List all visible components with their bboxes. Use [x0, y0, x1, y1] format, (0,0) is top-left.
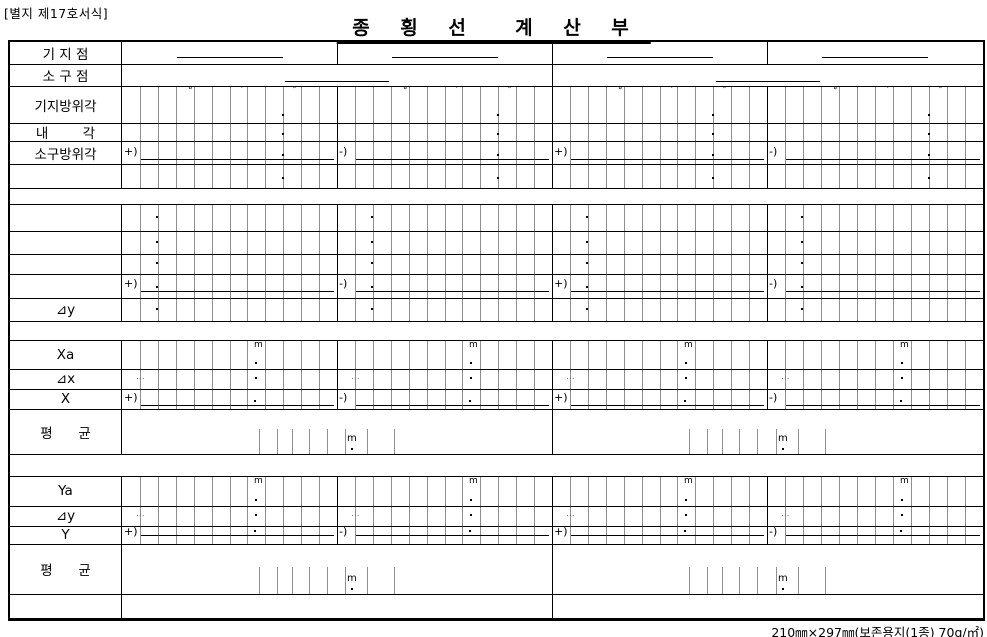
mean-tick	[707, 567, 708, 594]
mean-tick	[722, 567, 723, 594]
decimal-point	[801, 262, 803, 264]
cell-line	[230, 164, 231, 188]
mean-tick	[367, 567, 368, 594]
block-divider	[767, 164, 768, 188]
row-divider	[10, 409, 983, 410]
cell-line	[462, 298, 463, 321]
cell-line	[534, 340, 535, 369]
cell-line	[821, 274, 822, 298]
cell-line	[785, 389, 786, 409]
cell-line	[355, 389, 356, 409]
cell-line	[893, 506, 894, 526]
cell-line	[283, 231, 284, 254]
cell-line	[893, 231, 894, 254]
operator-sign: +)	[554, 146, 568, 157]
cell-line	[821, 389, 822, 409]
block-divider	[552, 389, 553, 409]
cell-line	[624, 164, 625, 188]
cell-line	[677, 204, 678, 231]
sum-line	[141, 405, 334, 406]
cell-line	[642, 86, 643, 123]
cell-line	[427, 298, 428, 321]
cell-line	[445, 254, 446, 274]
row-cells	[122, 204, 983, 231]
row-calc-row-1	[10, 204, 983, 231]
mean-tick	[277, 567, 278, 594]
cell-line	[624, 389, 625, 409]
cell-line	[965, 369, 966, 389]
cell-line	[445, 231, 446, 254]
cell-line	[498, 141, 499, 164]
cell-line	[427, 86, 428, 123]
decimal-point	[685, 499, 687, 501]
operator-sign: +)	[124, 278, 138, 289]
cell-line	[839, 86, 840, 123]
cell-line	[642, 476, 643, 506]
cell-line	[821, 164, 822, 188]
cell-line	[319, 476, 320, 506]
cell-line	[947, 141, 948, 164]
row-divider	[10, 389, 983, 390]
cell-line	[194, 164, 195, 188]
cell-line	[677, 389, 678, 409]
cell-line	[731, 369, 732, 389]
cell-line	[731, 298, 732, 321]
mean-tick	[798, 429, 799, 454]
cell-line	[588, 254, 589, 274]
operator-sign: -)	[769, 392, 777, 403]
cell-line	[731, 123, 732, 141]
decimal-point	[801, 308, 803, 310]
cell-line	[695, 389, 696, 409]
cell-line	[498, 389, 499, 409]
row-mean-y: 평 균mm	[10, 544, 983, 594]
decimal-point	[255, 377, 257, 379]
mean-tick	[309, 567, 310, 594]
decimal-point	[371, 262, 373, 264]
cell-line	[642, 123, 643, 141]
cell-line	[695, 254, 696, 274]
cell-line	[534, 369, 535, 389]
cell-line	[427, 506, 428, 526]
cell-line	[731, 164, 732, 188]
cell-line	[821, 476, 822, 506]
cell-line	[570, 476, 571, 506]
cell-line	[516, 123, 517, 141]
cell-line	[301, 506, 302, 526]
cell-line	[606, 369, 607, 389]
cell-line	[624, 369, 625, 389]
cell-line	[947, 86, 948, 123]
cell-line	[265, 476, 266, 506]
cell-line	[731, 506, 732, 526]
mean-tick	[394, 567, 395, 594]
cell-line	[265, 204, 266, 231]
mean-tick	[722, 429, 723, 454]
meter-symbol: m	[469, 341, 478, 350]
cell-line	[534, 476, 535, 506]
cell-line	[194, 204, 195, 231]
cell-line	[749, 254, 750, 274]
cell-line	[893, 389, 894, 409]
cell-line	[445, 389, 446, 409]
decimal-point	[928, 114, 930, 116]
decimal-point	[782, 448, 784, 450]
cell-line	[749, 141, 750, 164]
cell-line	[911, 506, 912, 526]
cell-line	[462, 141, 463, 164]
block-divider	[552, 594, 553, 618]
cell-line	[570, 141, 571, 164]
cell-line	[194, 141, 195, 164]
cell-line	[588, 389, 589, 409]
cell-line	[695, 506, 696, 526]
cell-line	[445, 369, 446, 389]
cell-line	[409, 164, 410, 188]
decimal-point	[469, 530, 471, 532]
cell-line	[857, 204, 858, 231]
second-symbol: ″	[293, 87, 296, 96]
cell-line	[642, 254, 643, 274]
block-divider	[552, 254, 553, 274]
decimal-point	[156, 262, 158, 264]
operator-sign: -)	[769, 526, 777, 537]
cell-line	[624, 476, 625, 506]
block-divider	[767, 123, 768, 141]
cell-line	[140, 123, 141, 141]
cell-line	[355, 231, 356, 254]
cell-line	[140, 340, 141, 369]
cell-line	[140, 86, 141, 123]
cell-line	[391, 231, 392, 254]
cell-line	[194, 369, 195, 389]
cell-line	[176, 254, 177, 274]
cell-line	[373, 274, 374, 298]
block-divider	[767, 369, 768, 389]
cell-line	[158, 369, 159, 389]
row-label: 소 구 점	[43, 65, 89, 85]
entry-underline	[285, 81, 389, 82]
row-label-cell	[10, 254, 122, 274]
block-divider	[552, 164, 553, 188]
cell-line	[749, 340, 750, 369]
cell-line	[319, 141, 320, 164]
cell-line	[283, 274, 284, 298]
decimal-point	[156, 216, 158, 218]
cell-line	[480, 298, 481, 321]
mean-tick	[825, 567, 826, 594]
row-spacer-2	[10, 321, 983, 340]
meter-symbol: m	[778, 434, 788, 444]
row-divider	[10, 123, 983, 124]
cell-line	[355, 86, 356, 123]
cell-line	[606, 340, 607, 369]
row-delta-y-upper: ⊿y	[10, 298, 983, 321]
cell-line	[230, 204, 231, 231]
cell-line	[677, 86, 678, 123]
cell-line	[803, 476, 804, 506]
cell-line	[695, 86, 696, 123]
cell-line	[893, 86, 894, 123]
cell-line	[158, 340, 159, 369]
row-divider	[10, 340, 983, 341]
cell-line	[713, 476, 714, 506]
cell-line	[965, 340, 966, 369]
cell-line	[965, 141, 966, 164]
row-cells	[122, 231, 983, 254]
cell-line	[624, 274, 625, 298]
cell-line	[677, 369, 678, 389]
decimal-point	[497, 177, 499, 179]
cell-line	[821, 123, 822, 141]
row-divider	[10, 141, 983, 142]
cell-line	[713, 204, 714, 231]
cell-line	[821, 506, 822, 526]
cell-line	[660, 340, 661, 369]
cell-line	[355, 141, 356, 164]
cell-line	[695, 164, 696, 188]
cell-line	[677, 476, 678, 506]
operator-sign: -)	[339, 392, 347, 403]
row-base-point: 기 지 점	[10, 42, 983, 64]
row-label: 평 균	[40, 559, 91, 579]
cell-line	[462, 274, 463, 298]
cell-line	[911, 254, 912, 274]
cell-line	[516, 86, 517, 123]
cell-line	[247, 86, 248, 123]
entry-underline	[392, 57, 498, 58]
cell-line	[821, 254, 822, 274]
mean-tick	[327, 429, 328, 454]
cell-line	[821, 340, 822, 369]
row-label: Xa	[57, 347, 75, 363]
row-divider	[10, 321, 983, 322]
cell-line	[642, 231, 643, 254]
row-ya: Yammmm	[10, 476, 983, 506]
cell-line	[929, 274, 930, 298]
cell-line	[803, 274, 804, 298]
cell-line	[516, 476, 517, 506]
block-divider	[552, 64, 553, 86]
cell-line	[498, 506, 499, 526]
cell-line	[498, 254, 499, 274]
cell-line	[498, 164, 499, 188]
mean-tick	[292, 567, 293, 594]
row-label-cell: 평 균	[10, 544, 122, 594]
block-divider	[767, 141, 768, 164]
row-cells	[122, 254, 983, 274]
row-calc-row-2	[10, 231, 983, 254]
decimal-point	[469, 400, 471, 402]
cell-line	[480, 389, 481, 409]
cell-line	[230, 298, 231, 321]
cell-line	[839, 274, 840, 298]
cell-line	[301, 254, 302, 274]
degree-symbol: °	[618, 87, 623, 96]
cell-line	[158, 389, 159, 409]
cell-line	[588, 340, 589, 369]
cell-line	[929, 123, 930, 141]
cell-line	[534, 254, 535, 274]
cell-line	[212, 231, 213, 254]
sum-line	[356, 159, 549, 160]
cell-line	[660, 141, 661, 164]
row-label: ⊿y	[56, 302, 75, 318]
cell-line	[265, 298, 266, 321]
cell-line	[319, 123, 320, 141]
cell-line	[588, 369, 589, 389]
cell-line	[965, 254, 966, 274]
row-divider	[10, 298, 983, 299]
cell-line	[319, 164, 320, 188]
decimal-point	[282, 133, 284, 135]
sum-line	[356, 405, 549, 406]
block-divider	[337, 298, 338, 321]
decimal-point	[470, 499, 472, 501]
cell-line	[373, 506, 374, 526]
cell-line	[194, 274, 195, 298]
entry-underline	[607, 57, 713, 58]
cell-line	[965, 204, 966, 231]
block-divider	[552, 369, 553, 389]
cell-line	[194, 298, 195, 321]
cell-line	[176, 506, 177, 526]
cell-line	[857, 254, 858, 274]
cell-line	[194, 340, 195, 369]
cell-line	[230, 123, 231, 141]
cell-line	[857, 506, 858, 526]
cell-line	[713, 254, 714, 274]
block-divider	[337, 506, 338, 526]
row-label: 기 지 점	[43, 43, 89, 63]
cell-line	[301, 123, 302, 141]
cell-line	[176, 369, 177, 389]
cell-line	[749, 231, 750, 254]
cell-line	[319, 298, 320, 321]
mean-tick	[739, 567, 740, 594]
block-divider	[767, 506, 768, 526]
mean-tick	[259, 429, 260, 454]
cell-line	[624, 123, 625, 141]
minute-symbol: ′	[241, 87, 243, 96]
cell-line	[929, 389, 930, 409]
mean-tick	[689, 567, 690, 594]
cell-line	[731, 389, 732, 409]
row-label-cell	[10, 204, 122, 231]
meter-symbol: m	[347, 434, 357, 444]
cell-line	[355, 123, 356, 141]
minute-symbol: ′	[887, 87, 889, 96]
row-label: 평 균	[40, 422, 91, 442]
cell-line	[247, 231, 248, 254]
mean-tick	[327, 567, 328, 594]
block-divider	[767, 86, 768, 123]
cell-line	[785, 141, 786, 164]
row-label: 내 각	[36, 122, 95, 142]
cell-line	[965, 476, 966, 506]
cell-line	[301, 274, 302, 298]
block-divider	[337, 204, 338, 231]
row-divider	[10, 64, 983, 65]
cell-line	[445, 86, 446, 123]
cell-line	[194, 123, 195, 141]
cell-line	[247, 389, 248, 409]
cell-line	[158, 274, 159, 298]
row-divider	[10, 506, 983, 507]
cell-line	[301, 476, 302, 506]
cell-line	[965, 123, 966, 141]
row-target-point: 소 구 점	[10, 64, 983, 86]
cell-line	[570, 340, 571, 369]
cell-line	[283, 369, 284, 389]
cell-line	[409, 123, 410, 141]
decimal-point	[586, 262, 588, 264]
cell-line	[965, 274, 966, 298]
sum-line	[571, 291, 764, 292]
cell-line	[516, 298, 517, 321]
decimal-point	[371, 216, 373, 218]
cell-line	[857, 86, 858, 123]
cell-line	[301, 204, 302, 231]
cell-line	[803, 340, 804, 369]
cell-line	[534, 298, 535, 321]
cell-line	[695, 123, 696, 141]
cell-line	[498, 274, 499, 298]
block-divider	[552, 409, 553, 454]
cell-line	[409, 389, 410, 409]
cell-line	[534, 164, 535, 188]
row-label-cell: 소구방위각	[10, 141, 122, 164]
cell-line	[839, 389, 840, 409]
cell-line	[194, 254, 195, 274]
row-cells	[122, 123, 983, 141]
cell-line	[230, 274, 231, 298]
cell-line	[140, 254, 141, 274]
cell-line	[875, 231, 876, 254]
cell-line	[391, 506, 392, 526]
block-divider	[767, 254, 768, 274]
cell-line	[749, 164, 750, 188]
cell-line	[319, 274, 320, 298]
cell-line	[462, 254, 463, 274]
cell-line	[821, 298, 822, 321]
meter-symbol: m	[778, 574, 788, 584]
cell-line	[785, 164, 786, 188]
decimal-point	[685, 514, 687, 516]
operator-sign: -)	[769, 278, 777, 289]
row-divider	[10, 526, 983, 527]
cell-line	[409, 254, 410, 274]
cell-line	[713, 86, 714, 123]
decimal-point	[900, 400, 902, 402]
cell-line	[445, 204, 446, 231]
mean-tick	[707, 429, 708, 454]
cell-line	[534, 231, 535, 254]
cell-line	[391, 204, 392, 231]
cell-line	[391, 86, 392, 123]
block-divider	[552, 86, 553, 123]
block-divider	[337, 141, 338, 164]
operator-sign: +)	[554, 526, 568, 537]
cell-line	[911, 164, 912, 188]
block-divider	[552, 123, 553, 141]
row-xa: Xammmm	[10, 340, 983, 369]
cell-line	[642, 369, 643, 389]
cell-line	[140, 274, 141, 298]
cell-line	[427, 476, 428, 506]
row-cells	[122, 64, 983, 86]
cell-line	[480, 274, 481, 298]
